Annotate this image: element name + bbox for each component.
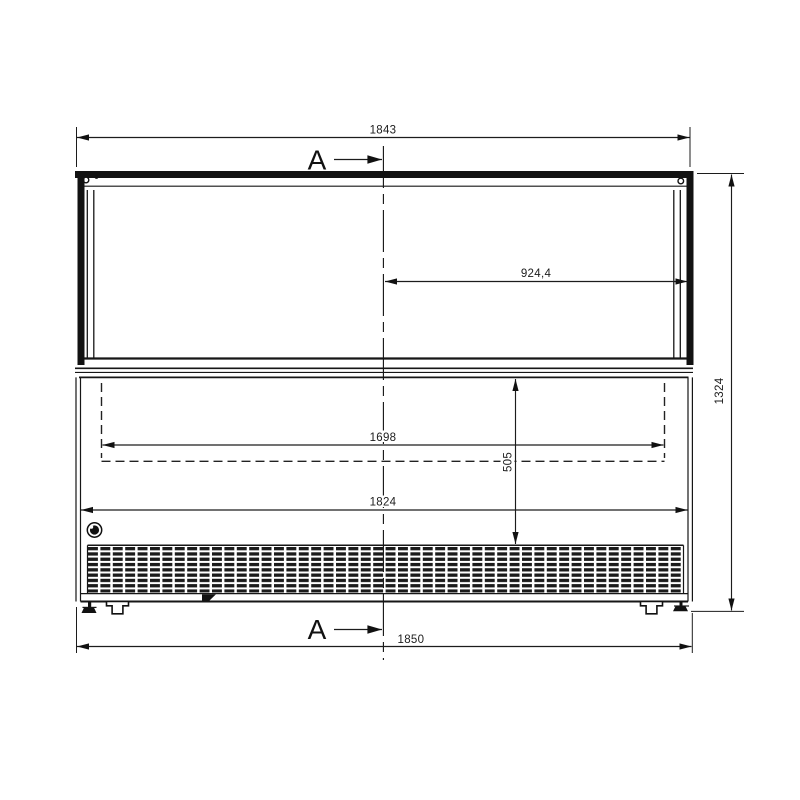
section-label-top: A	[308, 145, 327, 176]
display-case-front-elevation: 1843 A 924,4 1698 505 1824 1324 A	[0, 0, 800, 800]
right-screw-foot	[673, 602, 689, 612]
dimension-body-width: 1824	[81, 496, 688, 511]
left-bracket-foot	[107, 602, 129, 614]
section-label-bottom: A	[308, 614, 327, 645]
dimension-inner-width: 1698	[103, 431, 664, 446]
counter-band	[75, 368, 693, 377]
dimension-label-center-to-right: 924,4	[521, 268, 552, 280]
technical-drawing-page: 1843 A 924,4 1698 505 1824 1324 A	[0, 0, 800, 800]
dimension-label-inner-height: 505	[503, 452, 515, 472]
lock-icon	[87, 523, 101, 537]
dimension-label-body-width: 1824	[370, 497, 397, 509]
dimension-overall-width: 1850	[77, 607, 693, 653]
dimension-center-to-right: 924,4	[385, 268, 688, 282]
dimension-overall-height: 1324	[691, 174, 744, 612]
left-screw-foot	[82, 602, 97, 614]
feet	[82, 602, 690, 614]
dimension-label-inner-width: 1698	[370, 432, 397, 444]
right-bracket-foot	[641, 602, 663, 614]
left-post	[78, 171, 85, 365]
section-marker-top: A	[308, 145, 382, 176]
dimension-inner-height: 505	[501, 379, 516, 544]
right-post	[687, 171, 694, 365]
right-screw-icon	[678, 178, 684, 184]
ventilation-grille	[81, 545, 689, 601]
section-marker-bottom: A	[308, 614, 382, 645]
dimension-label-overall-height: 1324	[714, 377, 726, 404]
dimension-label-overall-width: 1850	[398, 634, 425, 646]
cabinet-outline	[75, 171, 694, 614]
dimension-label-top-width: 1843	[370, 125, 397, 137]
canopy-bar	[75, 171, 693, 178]
base-step	[202, 594, 216, 601]
left-screw-dot-icon	[95, 175, 99, 179]
